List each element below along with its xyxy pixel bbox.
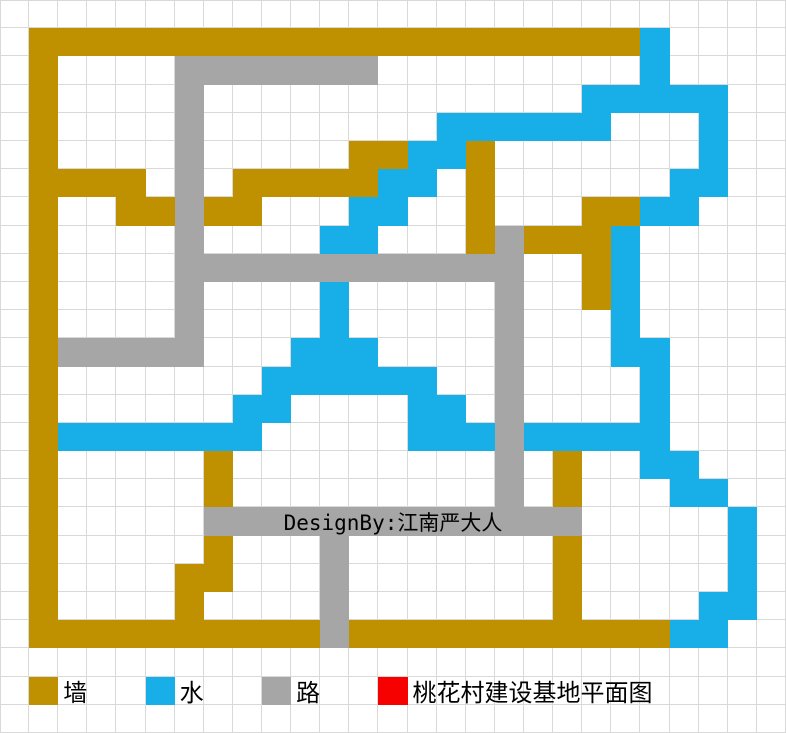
map-cell[interactable] bbox=[466, 56, 495, 84]
map-cell[interactable] bbox=[495, 677, 524, 705]
map-cell[interactable] bbox=[116, 0, 145, 28]
map-cell[interactable] bbox=[146, 56, 175, 84]
map-cell-road[interactable] bbox=[175, 197, 204, 225]
map-cell[interactable] bbox=[582, 310, 611, 338]
map-cell[interactable] bbox=[29, 705, 58, 733]
map-cell[interactable] bbox=[349, 592, 378, 620]
map-cell-road[interactable] bbox=[495, 310, 524, 338]
map-cell[interactable] bbox=[378, 113, 407, 141]
map-cell[interactable] bbox=[728, 56, 757, 84]
map-cell[interactable] bbox=[291, 282, 320, 310]
map-cell[interactable] bbox=[408, 592, 437, 620]
map-cell[interactable] bbox=[408, 536, 437, 564]
map-cell[interactable] bbox=[87, 536, 116, 564]
map-cell-wall[interactable] bbox=[466, 197, 495, 225]
map-cell[interactable] bbox=[670, 395, 699, 423]
map-cell-wall[interactable] bbox=[611, 28, 640, 56]
map-cell[interactable] bbox=[175, 705, 204, 733]
map-cell[interactable] bbox=[757, 226, 786, 254]
map-cell[interactable] bbox=[87, 677, 116, 705]
map-cell[interactable] bbox=[87, 197, 116, 225]
map-cell[interactable] bbox=[728, 0, 757, 28]
map-cell[interactable] bbox=[87, 56, 116, 84]
map-cell[interactable] bbox=[757, 197, 786, 225]
map-cell[interactable] bbox=[87, 0, 116, 28]
map-cell[interactable] bbox=[524, 395, 553, 423]
map-cell[interactable] bbox=[582, 451, 611, 479]
map-cell-water[interactable] bbox=[699, 85, 728, 113]
map-cell[interactable] bbox=[728, 197, 757, 225]
map-cell-road[interactable] bbox=[175, 282, 204, 310]
map-cell[interactable] bbox=[58, 282, 87, 310]
map-cell-road[interactable] bbox=[291, 254, 320, 282]
map-cell-wall[interactable] bbox=[204, 451, 233, 479]
map-cell[interactable] bbox=[611, 592, 640, 620]
map-cell[interactable] bbox=[378, 423, 407, 451]
map-cell-road[interactable] bbox=[495, 423, 524, 451]
map-cell[interactable] bbox=[757, 282, 786, 310]
map-cell-wall[interactable] bbox=[524, 620, 553, 648]
map-cell[interactable] bbox=[0, 367, 29, 395]
map-cell[interactable] bbox=[87, 705, 116, 733]
map-cell[interactable] bbox=[670, 423, 699, 451]
map-cell[interactable] bbox=[204, 677, 233, 705]
map-cell[interactable] bbox=[670, 254, 699, 282]
map-cell[interactable] bbox=[728, 226, 757, 254]
map-cell[interactable] bbox=[466, 338, 495, 366]
map-cell-water[interactable] bbox=[320, 338, 349, 366]
map-cell-wall[interactable] bbox=[378, 141, 407, 169]
map-cell[interactable] bbox=[437, 705, 466, 733]
map-cell[interactable] bbox=[146, 226, 175, 254]
map-cell[interactable] bbox=[58, 226, 87, 254]
map-cell[interactable] bbox=[640, 0, 669, 28]
map-cell[interactable] bbox=[757, 0, 786, 28]
map-cell-water[interactable] bbox=[670, 620, 699, 648]
map-cell[interactable] bbox=[87, 592, 116, 620]
map-cell[interactable] bbox=[582, 141, 611, 169]
map-cell[interactable] bbox=[175, 507, 204, 535]
map-cell[interactable] bbox=[0, 28, 29, 56]
map-cell[interactable] bbox=[466, 592, 495, 620]
map-cell[interactable] bbox=[233, 677, 262, 705]
map-cell[interactable] bbox=[233, 648, 262, 676]
map-cell[interactable] bbox=[58, 536, 87, 564]
map-cell-wall[interactable] bbox=[29, 677, 58, 705]
map-cell[interactable] bbox=[408, 338, 437, 366]
map-cell[interactable] bbox=[670, 28, 699, 56]
map-cell[interactable] bbox=[728, 648, 757, 676]
map-cell[interactable] bbox=[611, 169, 640, 197]
map-cell[interactable] bbox=[670, 705, 699, 733]
map-cell[interactable] bbox=[582, 0, 611, 28]
map-cell-water[interactable] bbox=[349, 226, 378, 254]
map-cell[interactable] bbox=[437, 282, 466, 310]
map-cell[interactable] bbox=[611, 677, 640, 705]
map-cell-water[interactable] bbox=[408, 423, 437, 451]
map-cell[interactable] bbox=[87, 451, 116, 479]
map-cell[interactable] bbox=[320, 85, 349, 113]
map-cell-water[interactable] bbox=[699, 620, 728, 648]
map-cell-wall[interactable] bbox=[116, 620, 145, 648]
map-cell[interactable] bbox=[233, 705, 262, 733]
map-cell[interactable] bbox=[582, 56, 611, 84]
map-cell[interactable] bbox=[378, 705, 407, 733]
map-cell[interactable] bbox=[611, 141, 640, 169]
map-cell-road[interactable] bbox=[320, 507, 349, 535]
map-cell-wall[interactable] bbox=[233, 28, 262, 56]
map-cell[interactable] bbox=[495, 169, 524, 197]
map-cell[interactable] bbox=[408, 56, 437, 84]
map-cell[interactable] bbox=[728, 113, 757, 141]
map-cell[interactable] bbox=[524, 564, 553, 592]
map-cell[interactable] bbox=[116, 85, 145, 113]
map-cell[interactable] bbox=[670, 592, 699, 620]
map-cell[interactable] bbox=[466, 85, 495, 113]
map-cell-water[interactable] bbox=[146, 423, 175, 451]
map-cell[interactable] bbox=[0, 169, 29, 197]
map-cell[interactable] bbox=[524, 56, 553, 84]
map-cell[interactable] bbox=[582, 507, 611, 535]
map-cell[interactable] bbox=[0, 282, 29, 310]
map-cell[interactable] bbox=[408, 282, 437, 310]
map-cell[interactable] bbox=[291, 141, 320, 169]
map-cell[interactable] bbox=[699, 677, 728, 705]
map-cell[interactable] bbox=[728, 141, 757, 169]
map-cell-road[interactable] bbox=[320, 56, 349, 84]
map-cell[interactable] bbox=[0, 507, 29, 535]
map-cell-water[interactable] bbox=[320, 367, 349, 395]
map-cell[interactable] bbox=[320, 113, 349, 141]
map-cell[interactable] bbox=[0, 0, 29, 28]
map-cell[interactable] bbox=[146, 648, 175, 676]
map-cell[interactable] bbox=[116, 451, 145, 479]
map-cell[interactable] bbox=[0, 592, 29, 620]
map-cell[interactable] bbox=[670, 56, 699, 84]
map-cell[interactable] bbox=[291, 592, 320, 620]
map-cell[interactable] bbox=[378, 282, 407, 310]
map-cell-wall[interactable] bbox=[29, 85, 58, 113]
map-cell-water[interactable] bbox=[670, 85, 699, 113]
map-cell[interactable] bbox=[320, 395, 349, 423]
map-cell[interactable] bbox=[378, 310, 407, 338]
map-cell-water[interactable] bbox=[582, 85, 611, 113]
map-cell[interactable] bbox=[728, 423, 757, 451]
map-cell[interactable] bbox=[175, 536, 204, 564]
map-cell[interactable] bbox=[262, 648, 291, 676]
map-cell-wall[interactable] bbox=[29, 254, 58, 282]
map-cell[interactable] bbox=[437, 56, 466, 84]
map-cell[interactable] bbox=[320, 648, 349, 676]
map-cell[interactable] bbox=[757, 28, 786, 56]
map-cell-wall[interactable] bbox=[378, 28, 407, 56]
map-cell[interactable] bbox=[349, 282, 378, 310]
map-cell-wall[interactable] bbox=[262, 620, 291, 648]
map-cell-wall[interactable] bbox=[466, 620, 495, 648]
map-cell[interactable] bbox=[204, 310, 233, 338]
map-cell[interactable] bbox=[320, 451, 349, 479]
map-cell[interactable] bbox=[466, 451, 495, 479]
map-cell[interactable] bbox=[349, 564, 378, 592]
map-cell-water[interactable] bbox=[291, 338, 320, 366]
map-cell[interactable] bbox=[378, 592, 407, 620]
map-cell-wall[interactable] bbox=[349, 141, 378, 169]
map-cell[interactable] bbox=[378, 338, 407, 366]
map-cell[interactable] bbox=[378, 564, 407, 592]
map-cell-wall[interactable] bbox=[553, 620, 582, 648]
map-cell-road[interactable] bbox=[175, 338, 204, 366]
map-cell[interactable] bbox=[29, 0, 58, 28]
map-cell-water[interactable] bbox=[437, 395, 466, 423]
map-cell-road[interactable] bbox=[495, 507, 524, 535]
map-cell[interactable] bbox=[116, 310, 145, 338]
map-cell[interactable] bbox=[349, 395, 378, 423]
map-cell[interactable] bbox=[233, 85, 262, 113]
map-cell[interactable] bbox=[146, 367, 175, 395]
map-cell[interactable] bbox=[291, 113, 320, 141]
map-cell[interactable] bbox=[757, 677, 786, 705]
map-cell-water[interactable] bbox=[378, 197, 407, 225]
map-cell[interactable] bbox=[262, 0, 291, 28]
map-cell[interactable] bbox=[0, 648, 29, 676]
map-cell-wall[interactable] bbox=[466, 141, 495, 169]
map-cell[interactable] bbox=[0, 197, 29, 225]
map-cell[interactable] bbox=[466, 677, 495, 705]
map-cell[interactable] bbox=[582, 169, 611, 197]
map-cell[interactable] bbox=[553, 338, 582, 366]
map-cell-road[interactable] bbox=[262, 56, 291, 84]
map-cell[interactable] bbox=[175, 677, 204, 705]
map-cell[interactable] bbox=[320, 197, 349, 225]
map-cell[interactable] bbox=[553, 141, 582, 169]
map-cell[interactable] bbox=[291, 536, 320, 564]
map-cell[interactable] bbox=[670, 338, 699, 366]
map-cell-wall[interactable] bbox=[29, 479, 58, 507]
map-cell[interactable] bbox=[58, 367, 87, 395]
map-cell[interactable] bbox=[524, 536, 553, 564]
map-cell[interactable] bbox=[204, 169, 233, 197]
map-cell-road[interactable] bbox=[262, 507, 291, 535]
map-cell-road[interactable] bbox=[146, 338, 175, 366]
map-cell-wall[interactable] bbox=[58, 169, 87, 197]
map-cell-wall[interactable] bbox=[116, 28, 145, 56]
map-cell[interactable] bbox=[582, 536, 611, 564]
map-cell[interactable] bbox=[116, 536, 145, 564]
map-cell[interactable] bbox=[437, 564, 466, 592]
map-cell[interactable] bbox=[670, 564, 699, 592]
map-cell-water[interactable] bbox=[640, 395, 669, 423]
map-cell[interactable] bbox=[553, 0, 582, 28]
map-cell-wall[interactable] bbox=[58, 620, 87, 648]
map-cell-water[interactable] bbox=[699, 169, 728, 197]
map-cell[interactable] bbox=[699, 451, 728, 479]
map-cell-water[interactable] bbox=[466, 113, 495, 141]
map-cell[interactable] bbox=[262, 592, 291, 620]
map-cell[interactable] bbox=[699, 507, 728, 535]
map-cell[interactable] bbox=[175, 0, 204, 28]
map-cell[interactable] bbox=[320, 705, 349, 733]
map-cell[interactable] bbox=[58, 677, 87, 705]
map-cell-wall[interactable] bbox=[553, 564, 582, 592]
map-cell[interactable] bbox=[204, 338, 233, 366]
map-cell[interactable] bbox=[58, 310, 87, 338]
map-cell[interactable] bbox=[233, 226, 262, 254]
map-cell[interactable] bbox=[757, 507, 786, 535]
map-cell[interactable] bbox=[524, 282, 553, 310]
map-cell[interactable] bbox=[0, 564, 29, 592]
map-cell[interactable] bbox=[640, 592, 669, 620]
map-cell[interactable] bbox=[437, 0, 466, 28]
map-cell-water[interactable] bbox=[611, 85, 640, 113]
map-cell[interactable] bbox=[699, 56, 728, 84]
map-cell[interactable] bbox=[146, 85, 175, 113]
map-cell[interactable] bbox=[437, 451, 466, 479]
map-cell-road[interactable] bbox=[320, 564, 349, 592]
map-cell-wall[interactable] bbox=[320, 169, 349, 197]
map-cell[interactable] bbox=[611, 648, 640, 676]
map-cell[interactable] bbox=[204, 226, 233, 254]
map-cell-road[interactable] bbox=[291, 56, 320, 84]
map-cell[interactable] bbox=[728, 85, 757, 113]
map-cell[interactable] bbox=[291, 197, 320, 225]
map-cell[interactable] bbox=[291, 310, 320, 338]
map-cell-wall[interactable] bbox=[29, 113, 58, 141]
map-cell-water[interactable] bbox=[640, 28, 669, 56]
map-cell-wall[interactable] bbox=[233, 169, 262, 197]
map-cell[interactable] bbox=[611, 113, 640, 141]
map-cell-road[interactable] bbox=[437, 254, 466, 282]
map-cell[interactable] bbox=[408, 677, 437, 705]
map-cell-road[interactable] bbox=[495, 338, 524, 366]
map-cell-wall[interactable] bbox=[582, 620, 611, 648]
map-cell[interactable] bbox=[553, 56, 582, 84]
map-cell-wall[interactable] bbox=[58, 28, 87, 56]
map-cell-road[interactable] bbox=[495, 451, 524, 479]
map-cell[interactable] bbox=[670, 113, 699, 141]
map-cell-water[interactable] bbox=[262, 395, 291, 423]
map-cell[interactable] bbox=[437, 310, 466, 338]
map-cell[interactable] bbox=[408, 310, 437, 338]
map-cell[interactable] bbox=[291, 226, 320, 254]
map-cell[interactable] bbox=[699, 338, 728, 366]
map-cell[interactable] bbox=[349, 536, 378, 564]
map-cell[interactable] bbox=[757, 141, 786, 169]
map-cell[interactable] bbox=[87, 310, 116, 338]
map-cell[interactable] bbox=[437, 536, 466, 564]
map-cell[interactable] bbox=[611, 56, 640, 84]
map-cell[interactable] bbox=[553, 395, 582, 423]
map-cell[interactable] bbox=[175, 395, 204, 423]
map-cell-road[interactable] bbox=[175, 141, 204, 169]
map-cell[interactable] bbox=[262, 338, 291, 366]
map-cell-water[interactable] bbox=[699, 141, 728, 169]
map-cell[interactable] bbox=[87, 85, 116, 113]
map-cell-wall[interactable] bbox=[29, 451, 58, 479]
map-cell[interactable] bbox=[699, 226, 728, 254]
map-cell[interactable] bbox=[58, 141, 87, 169]
map-cell-water[interactable] bbox=[640, 423, 669, 451]
map-cell[interactable] bbox=[58, 479, 87, 507]
map-cell[interactable] bbox=[146, 282, 175, 310]
map-cell[interactable] bbox=[524, 338, 553, 366]
map-cell-wall[interactable] bbox=[29, 423, 58, 451]
map-cell[interactable] bbox=[466, 536, 495, 564]
map-cell[interactable] bbox=[349, 310, 378, 338]
map-cell[interactable] bbox=[0, 254, 29, 282]
map-cell-wall[interactable] bbox=[175, 564, 204, 592]
map-cell[interactable] bbox=[437, 226, 466, 254]
map-cell-road[interactable] bbox=[320, 592, 349, 620]
map-cell[interactable] bbox=[87, 367, 116, 395]
map-cell[interactable] bbox=[699, 254, 728, 282]
map-cell-wall[interactable] bbox=[146, 620, 175, 648]
map-cell[interactable] bbox=[553, 254, 582, 282]
map-cell[interactable] bbox=[146, 254, 175, 282]
map-cell-water[interactable] bbox=[640, 56, 669, 84]
map-cell-road[interactable] bbox=[408, 507, 437, 535]
map-cell-road[interactable] bbox=[408, 254, 437, 282]
map-cell[interactable] bbox=[699, 648, 728, 676]
map-cell[interactable] bbox=[437, 85, 466, 113]
map-cell[interactable] bbox=[408, 564, 437, 592]
map-cell[interactable] bbox=[524, 310, 553, 338]
map-cell-water[interactable] bbox=[204, 423, 233, 451]
map-cell-wall[interactable] bbox=[611, 197, 640, 225]
map-cell[interactable] bbox=[0, 141, 29, 169]
map-cell[interactable] bbox=[582, 338, 611, 366]
map-cell-wall[interactable] bbox=[437, 620, 466, 648]
map-cell[interactable] bbox=[582, 648, 611, 676]
map-cell-wall[interactable] bbox=[466, 226, 495, 254]
map-cell[interactable] bbox=[58, 648, 87, 676]
map-cell[interactable] bbox=[87, 564, 116, 592]
map-cell-water[interactable] bbox=[58, 423, 87, 451]
map-cell[interactable] bbox=[0, 338, 29, 366]
map-cell[interactable] bbox=[0, 677, 29, 705]
map-cell[interactable] bbox=[699, 705, 728, 733]
map-cell[interactable] bbox=[116, 254, 145, 282]
map-cell[interactable] bbox=[582, 395, 611, 423]
map-cell-water[interactable] bbox=[437, 113, 466, 141]
map-cell[interactable] bbox=[233, 141, 262, 169]
map-cell-wall[interactable] bbox=[553, 226, 582, 254]
map-cell-wall[interactable] bbox=[29, 564, 58, 592]
map-cell[interactable] bbox=[291, 0, 320, 28]
map-cell-wall[interactable] bbox=[29, 592, 58, 620]
map-cell-water[interactable] bbox=[408, 141, 437, 169]
map-cell[interactable] bbox=[495, 85, 524, 113]
map-cell[interactable] bbox=[175, 479, 204, 507]
map-cell[interactable] bbox=[699, 367, 728, 395]
map-cell[interactable] bbox=[757, 479, 786, 507]
map-cell-water[interactable] bbox=[670, 169, 699, 197]
map-cell-wall[interactable] bbox=[204, 197, 233, 225]
map-cell-road[interactable] bbox=[466, 507, 495, 535]
map-cell[interactable] bbox=[553, 169, 582, 197]
map-cell[interactable] bbox=[728, 338, 757, 366]
map-cell[interactable] bbox=[378, 451, 407, 479]
map-cell-road[interactable] bbox=[87, 338, 116, 366]
map-cell[interactable] bbox=[728, 28, 757, 56]
map-cell[interactable] bbox=[0, 620, 29, 648]
map-cell-water[interactable] bbox=[87, 423, 116, 451]
map-cell-wall[interactable] bbox=[29, 536, 58, 564]
map-cell-road[interactable] bbox=[233, 507, 262, 535]
map-cell[interactable] bbox=[553, 677, 582, 705]
map-cell[interactable] bbox=[670, 677, 699, 705]
map-cell-road[interactable] bbox=[495, 479, 524, 507]
map-cell-wall[interactable] bbox=[582, 28, 611, 56]
